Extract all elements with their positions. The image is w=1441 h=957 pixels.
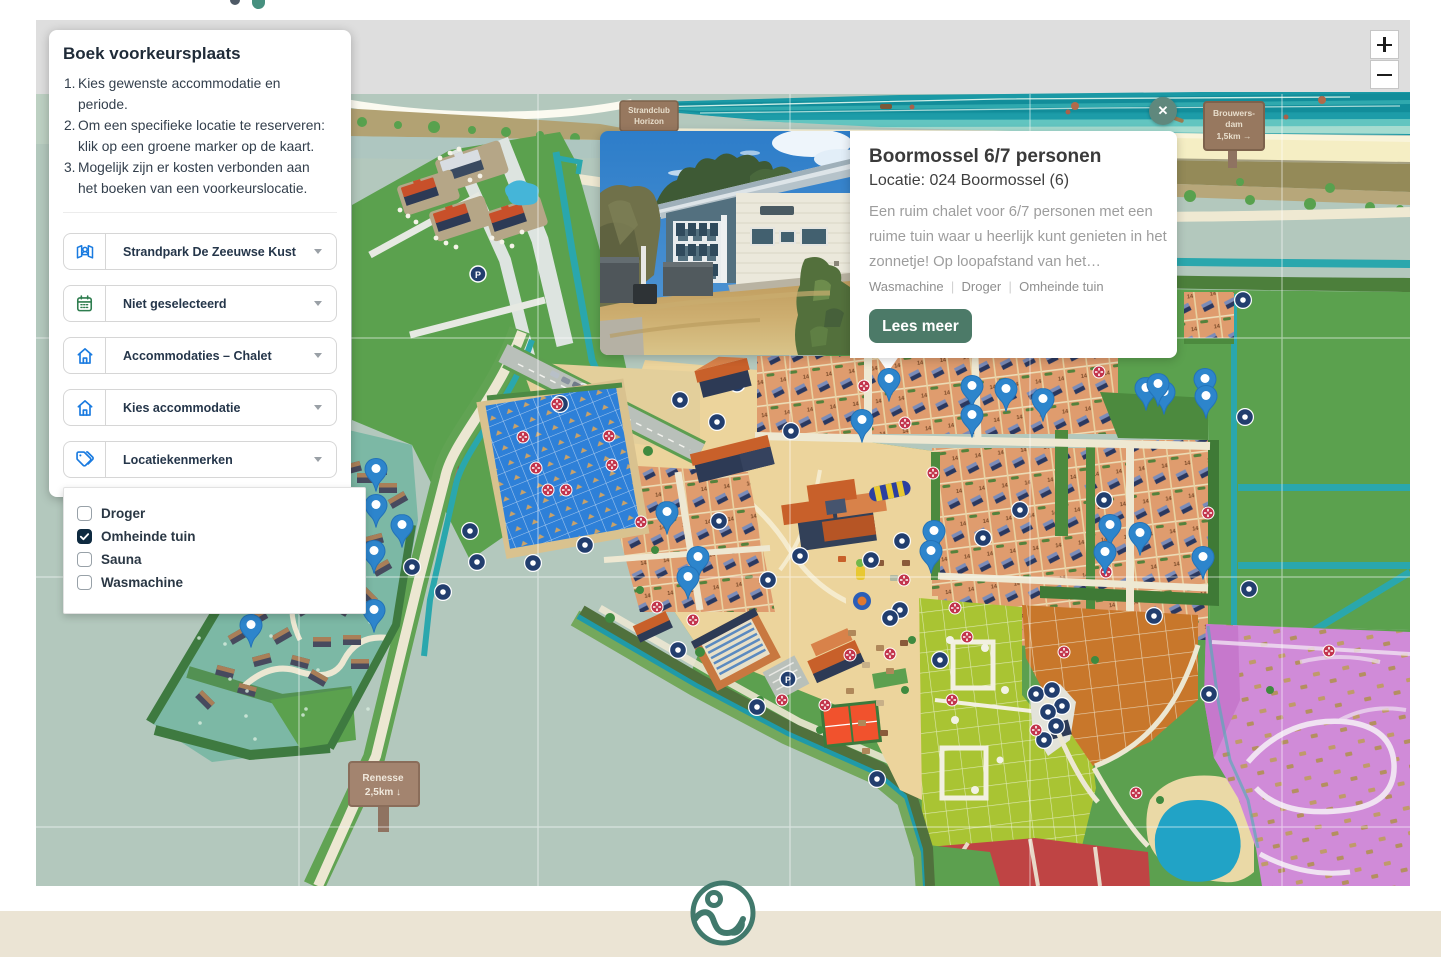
svg-text:Renesse: Renesse <box>362 773 404 784</box>
svg-text:Brouwers-: Brouwers- <box>1213 108 1255 118</box>
svg-text:dam: dam <box>1225 119 1243 129</box>
svg-text:P: P <box>475 270 481 280</box>
svg-text:Horizon: Horizon <box>634 117 664 126</box>
svg-text:1,5km →: 1,5km → <box>1217 131 1252 141</box>
svg-text:Strandclub: Strandclub <box>628 106 670 115</box>
svg-text:2,5km ↓: 2,5km ↓ <box>365 787 401 798</box>
